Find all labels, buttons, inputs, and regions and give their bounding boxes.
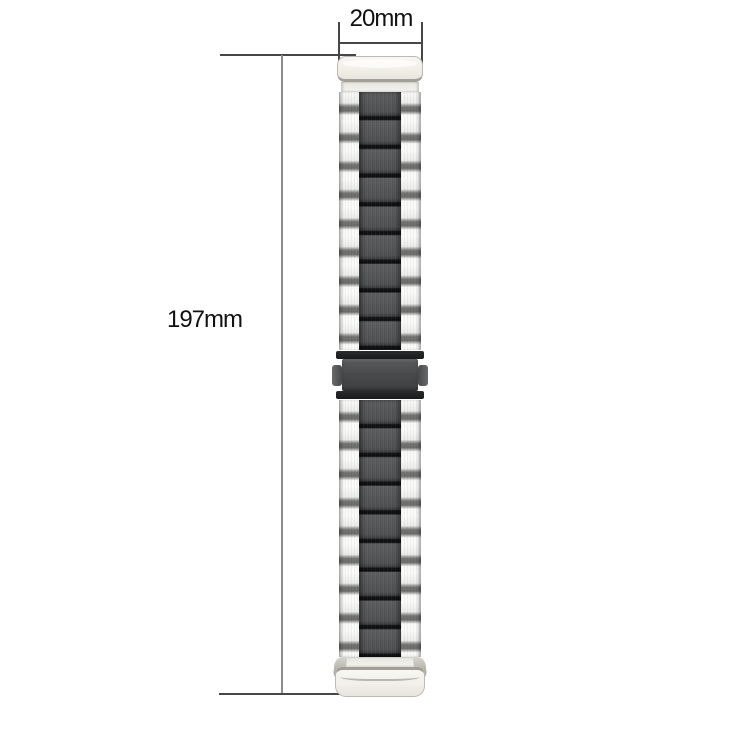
top-end-link (337, 56, 423, 82)
upper-outer-links-right (401, 92, 421, 350)
upper-outer-links-left (339, 92, 359, 350)
clasp-release-button-right (418, 365, 428, 386)
length-dimension-line (281, 55, 283, 695)
clasp-release-button-left (332, 365, 342, 386)
upper-center-links (359, 92, 401, 350)
lower-center-links (359, 400, 401, 657)
clasp (339, 350, 421, 400)
bottom-connector (341, 657, 419, 667)
clasp-bottom-bar (336, 391, 424, 399)
length-extension-line-top (220, 54, 356, 56)
width-dimension-line (338, 42, 423, 44)
length-dimension-label: 197mm (158, 307, 242, 333)
upper-link-section (339, 92, 421, 350)
product-dimension-image: 20mm 197mm (0, 0, 750, 750)
length-extension-line-bottom (219, 693, 357, 695)
top-connector (341, 82, 419, 92)
watch-band (339, 56, 421, 697)
clasp-top-bar (336, 351, 424, 359)
clasp-body (342, 359, 418, 391)
width-dimension-label: 20mm (339, 6, 423, 32)
lower-outer-links-left (339, 400, 359, 657)
lower-outer-links-right (401, 400, 421, 657)
bottom-end-link (335, 667, 425, 697)
lower-link-section (339, 400, 421, 657)
